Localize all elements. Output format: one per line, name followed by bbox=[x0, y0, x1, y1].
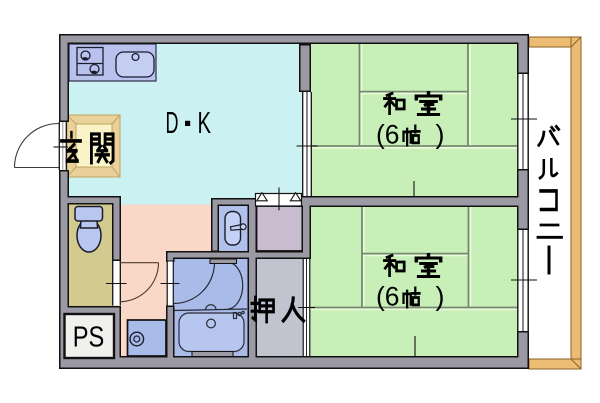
svg-text:(6: (6 bbox=[376, 282, 400, 312]
svg-text:K: K bbox=[198, 106, 212, 140]
svg-text:PS: PS bbox=[73, 322, 105, 354]
svg-text:): ) bbox=[436, 282, 445, 312]
svg-text:): ) bbox=[436, 120, 445, 150]
svg-text:(6: (6 bbox=[376, 120, 400, 150]
svg-text:D: D bbox=[166, 106, 179, 140]
